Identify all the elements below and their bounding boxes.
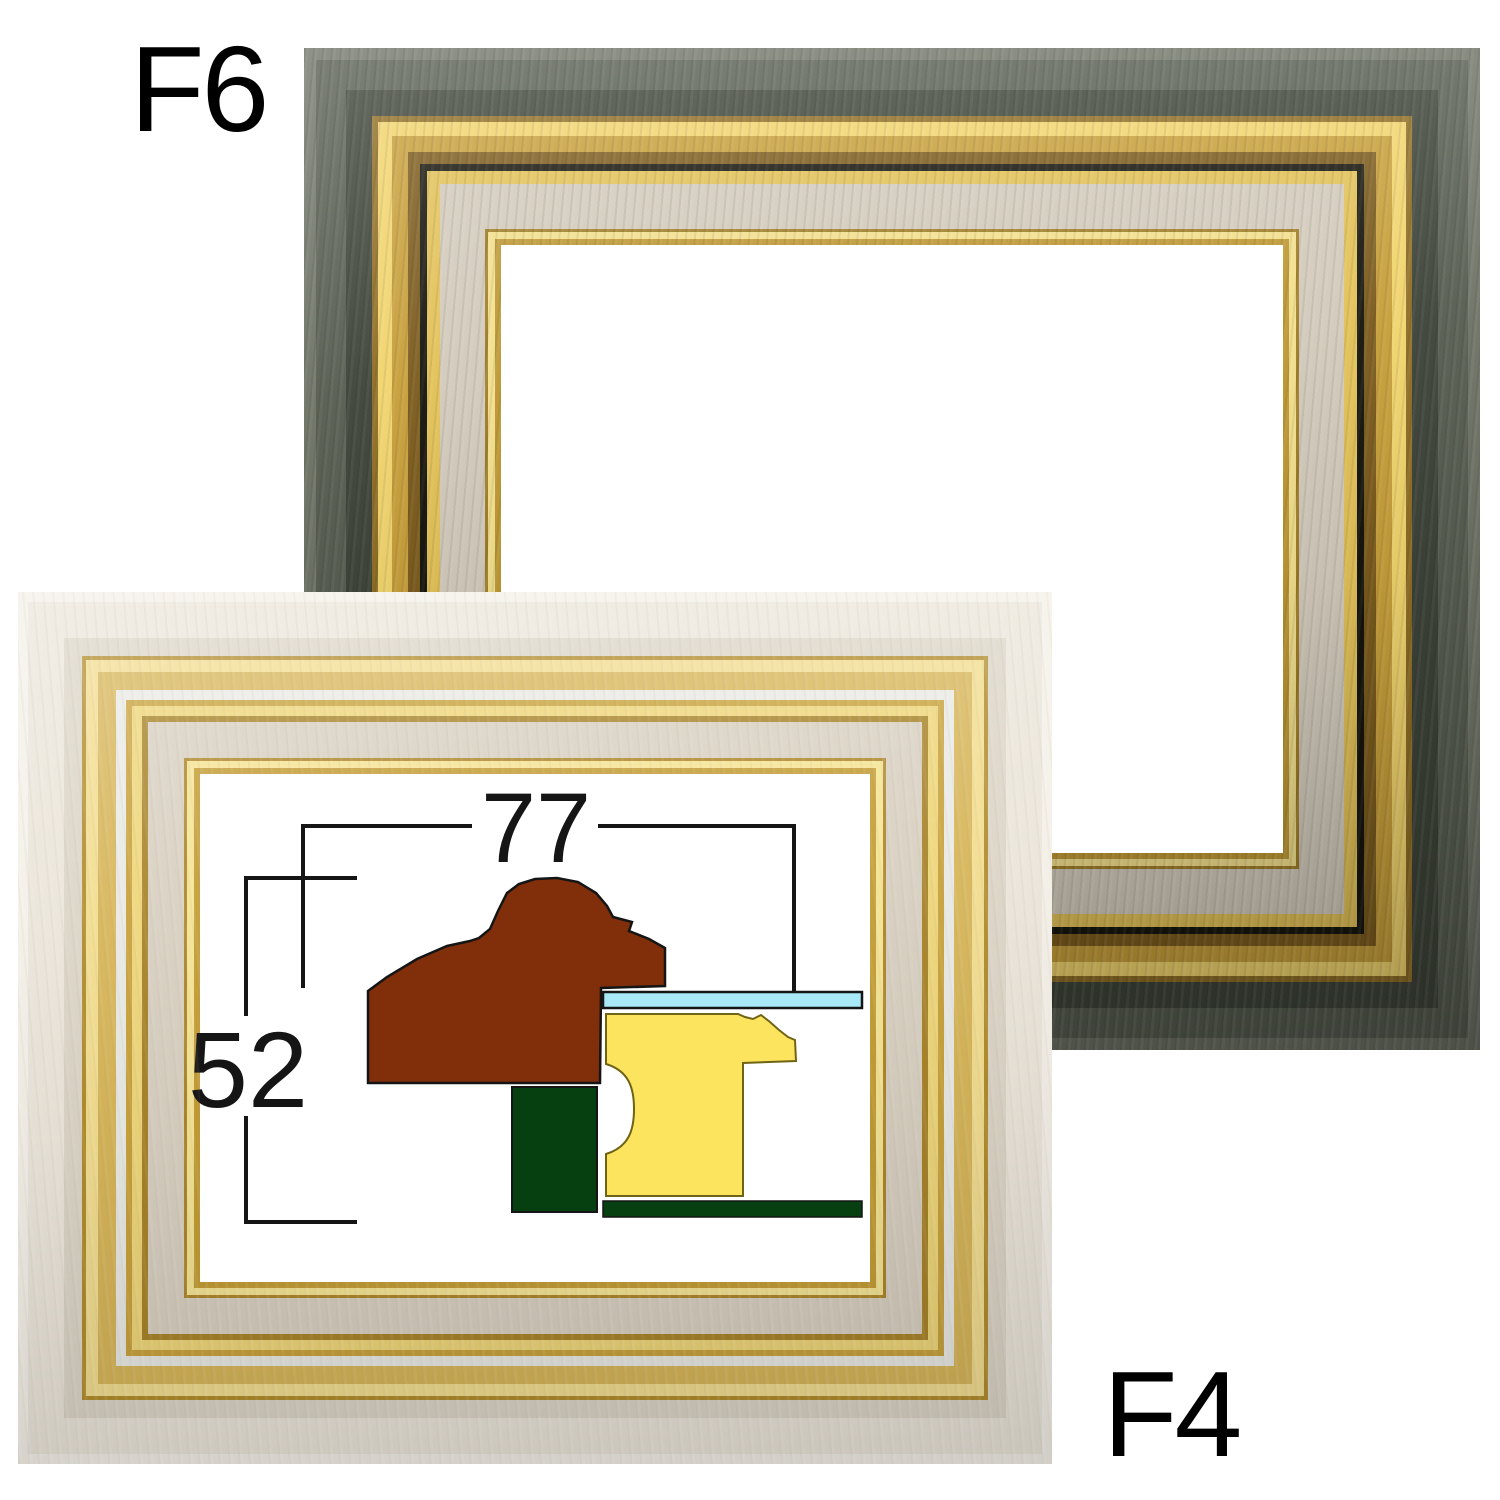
glass-strip — [603, 992, 862, 1008]
f4-gold-lip-highlight: 77 52 — [187, 761, 883, 1295]
f4-gold-bevel-dark: 77 52 — [126, 700, 944, 1356]
f4-gold-molding-highlight: 77 52 — [86, 660, 984, 1396]
f4-wood-band-shadow: 77 52 — [64, 638, 1006, 1418]
f4-frame-opening: 77 52 — [200, 774, 870, 1282]
dimension-height-value: 52 — [188, 1009, 308, 1130]
dimension-height-line-bottom — [246, 1116, 357, 1222]
f4-gold-lip-edge: 77 52 — [184, 758, 886, 1298]
page: { "labels": { "top_frame_size": "F6", "b… — [0, 0, 1500, 1500]
f4-wood-band-mid: 77 52 — [28, 602, 1042, 1454]
liner-profile-shape — [606, 1014, 796, 1196]
f4-gold-bevel-shadow: 77 52 — [142, 716, 928, 1340]
backing-block — [512, 1087, 597, 1212]
f4-silver-line-band: 77 52 — [116, 690, 954, 1366]
frame-size-label-f6: F6 — [130, 28, 266, 150]
product-image: 77 52 — [0, 0, 1500, 1500]
backing-bar — [603, 1201, 862, 1217]
f4-gold-lip-mid: 77 52 — [194, 768, 876, 1288]
dimension-width-value: 77 — [481, 772, 591, 883]
f4-linen-liner-band: 77 52 — [148, 722, 922, 1334]
f4-wood-band-highlight: 77 52 — [18, 592, 1052, 1464]
frame-photo-f4: 77 52 — [18, 592, 1052, 1464]
f4-gold-molding-edge: 77 52 — [82, 656, 988, 1400]
f4-gold-molding-mid: 77 52 — [98, 672, 972, 1384]
molding-cross-section-diagram: 77 52 — [200, 774, 870, 1282]
f4-gold-bevel-highlight: 77 52 — [132, 706, 938, 1350]
frame-size-label-f4: F4 — [1103, 1353, 1239, 1475]
